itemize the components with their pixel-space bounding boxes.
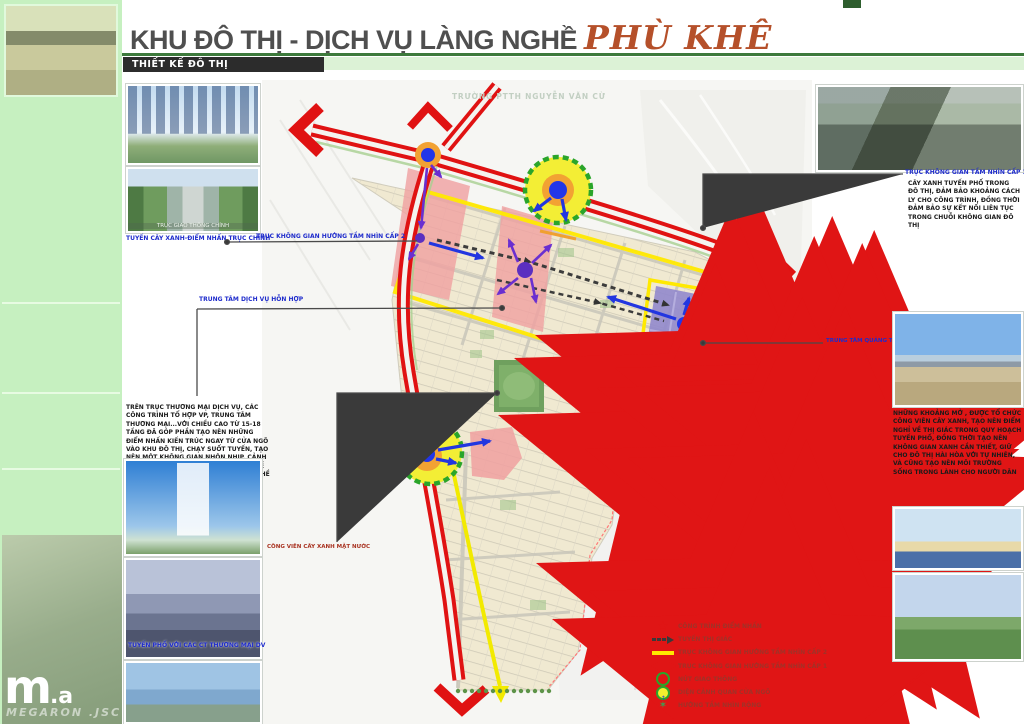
megaron-logo: m.a xyxy=(4,664,73,710)
boulevard-caption: TRỤC GIAO THÔNG CHÍNH xyxy=(128,223,258,229)
page-title: KHU ĐÔ THỊ - DỊCH VỤ LÀNG NGHỀ PHÙ KHÊ xyxy=(130,18,772,57)
label-mixed-use-center: TRUNG TÂM DỊCH VỤ HỖN HỢP xyxy=(199,296,303,303)
render-building-photo xyxy=(124,661,262,724)
header-rule xyxy=(122,53,1024,56)
red-double-arrow-icon xyxy=(648,662,678,670)
corner-tab xyxy=(843,0,861,8)
megaron-watermark: MEGARON .JSC xyxy=(6,706,121,719)
wide-view-star-icon: ✶↑ xyxy=(648,701,678,711)
left-green-column: m.a MEGARON .JSC xyxy=(0,0,122,724)
render-apartments-photo xyxy=(126,84,260,165)
legend: ★ CÔNG TRÌNH ĐIỂM NHẤN TUYẾN THỊ GIÁC TR… xyxy=(648,620,830,712)
label-school: TRƯỜNG PTTH NGUYỄN VĂN CỪ xyxy=(452,92,642,101)
open-space-paragraph: NHỮNG KHOẢNG MỞ , ĐƯỢC TỔ CHỨC CÔNG VIÊN… xyxy=(893,410,1023,477)
caption-commercial-street: TUYẾN PHỐ VỚI CÁC CT THƯƠNG MẠI DV xyxy=(128,642,265,649)
gateway-circle-northeast xyxy=(525,157,591,223)
village-house-photo xyxy=(4,4,118,97)
render-street-photo: TUYẾN PHỐ VỚI CÁC CT THƯƠNG MẠI DV xyxy=(124,558,262,659)
plaza-photo xyxy=(893,312,1023,407)
divider xyxy=(2,302,120,304)
page-title-main: KHU ĐÔ THỊ - DỊCH VỤ LÀNG NGHỀ xyxy=(130,25,584,55)
dashed-arrow-icon xyxy=(648,636,678,644)
legend-item: ✶↑ HƯỚNG TẦM NHÌN RỘNG xyxy=(648,699,830,712)
label-axis-level1: TRỤC KHÔNG GIAN TẦM NHÌN CẤP 1 xyxy=(905,169,1023,176)
yellow-line-icon xyxy=(648,651,678,655)
header-strip xyxy=(323,57,1024,70)
legend-item: TRỤC KHÔNG GIAN HƯỚNG TẦM NHÌN CẤP 1 xyxy=(648,660,830,673)
label-axis-level2: TRỤC KHÔNG GIAN HƯỚNG TẦM NHÌN CẤP 2 xyxy=(256,233,405,240)
page-title-script: PHÙ KHÊ xyxy=(584,18,772,57)
legend-item: DIỆN CẢNH QUAN CỬA NGÕ xyxy=(648,686,830,699)
legend-item: TUYẾN THỊ GIÁC xyxy=(648,633,830,646)
render-avenue-photo xyxy=(816,85,1023,172)
gateway-node-north xyxy=(415,142,441,168)
section-title-bar: THIẾT KẾ ĐÔ THỊ xyxy=(123,57,324,72)
divider xyxy=(2,468,120,470)
label-park: CÔNG VIÊN CÂY XANH MẶT NƯỚC xyxy=(267,544,370,551)
render-tower-photo xyxy=(124,459,262,556)
poster-page: { "header": { "title_main": "KHU ĐÔ THỊ … xyxy=(0,0,1024,724)
red-star-icon: ★ xyxy=(648,620,678,633)
legend-item: NÚT GIAO THÔNG xyxy=(648,673,830,686)
legend-item: TRỤC KHÔNG GIAN HƯỚNG TẦM NHÌN CẤP 2 xyxy=(648,646,830,659)
fountain-photo-1 xyxy=(893,507,1023,570)
legend-item: ★ CÔNG TRÌNH ĐIỂM NHẤN xyxy=(648,620,830,633)
green-circle-icon xyxy=(648,672,678,686)
node-central xyxy=(517,262,533,278)
render-boulevard-photo: TRỤC GIAO THÔNG CHÍNH xyxy=(126,167,260,233)
divider xyxy=(2,392,120,394)
fountain-photo-2 xyxy=(893,573,1023,661)
axis-level1-paragraph: CÂY XANH TUYẾN PHỐ TRONG ĐÔ THỊ, ĐẢM BẢO… xyxy=(908,180,1020,230)
caption-green-axis: TUYẾN CÂY XANH-ĐIỂM NHẤN TRỤC CHÍNH xyxy=(126,235,266,242)
